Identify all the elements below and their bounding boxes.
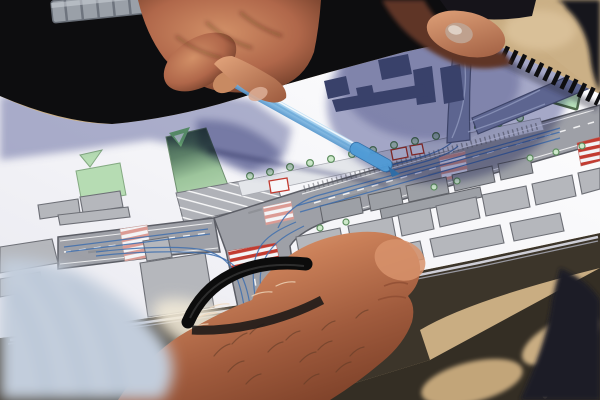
photo-stage [0,0,600,400]
photo-scene [0,0,600,400]
building-in-shadow [356,85,375,102]
tree [527,155,533,161]
building-in-shadow [440,64,464,104]
tree [317,225,323,231]
tree [307,160,314,167]
tree [328,156,335,163]
tree [579,143,585,149]
building [578,168,600,194]
tree [553,149,559,155]
tree [431,184,437,190]
tree [343,219,349,225]
shelter [269,178,289,193]
